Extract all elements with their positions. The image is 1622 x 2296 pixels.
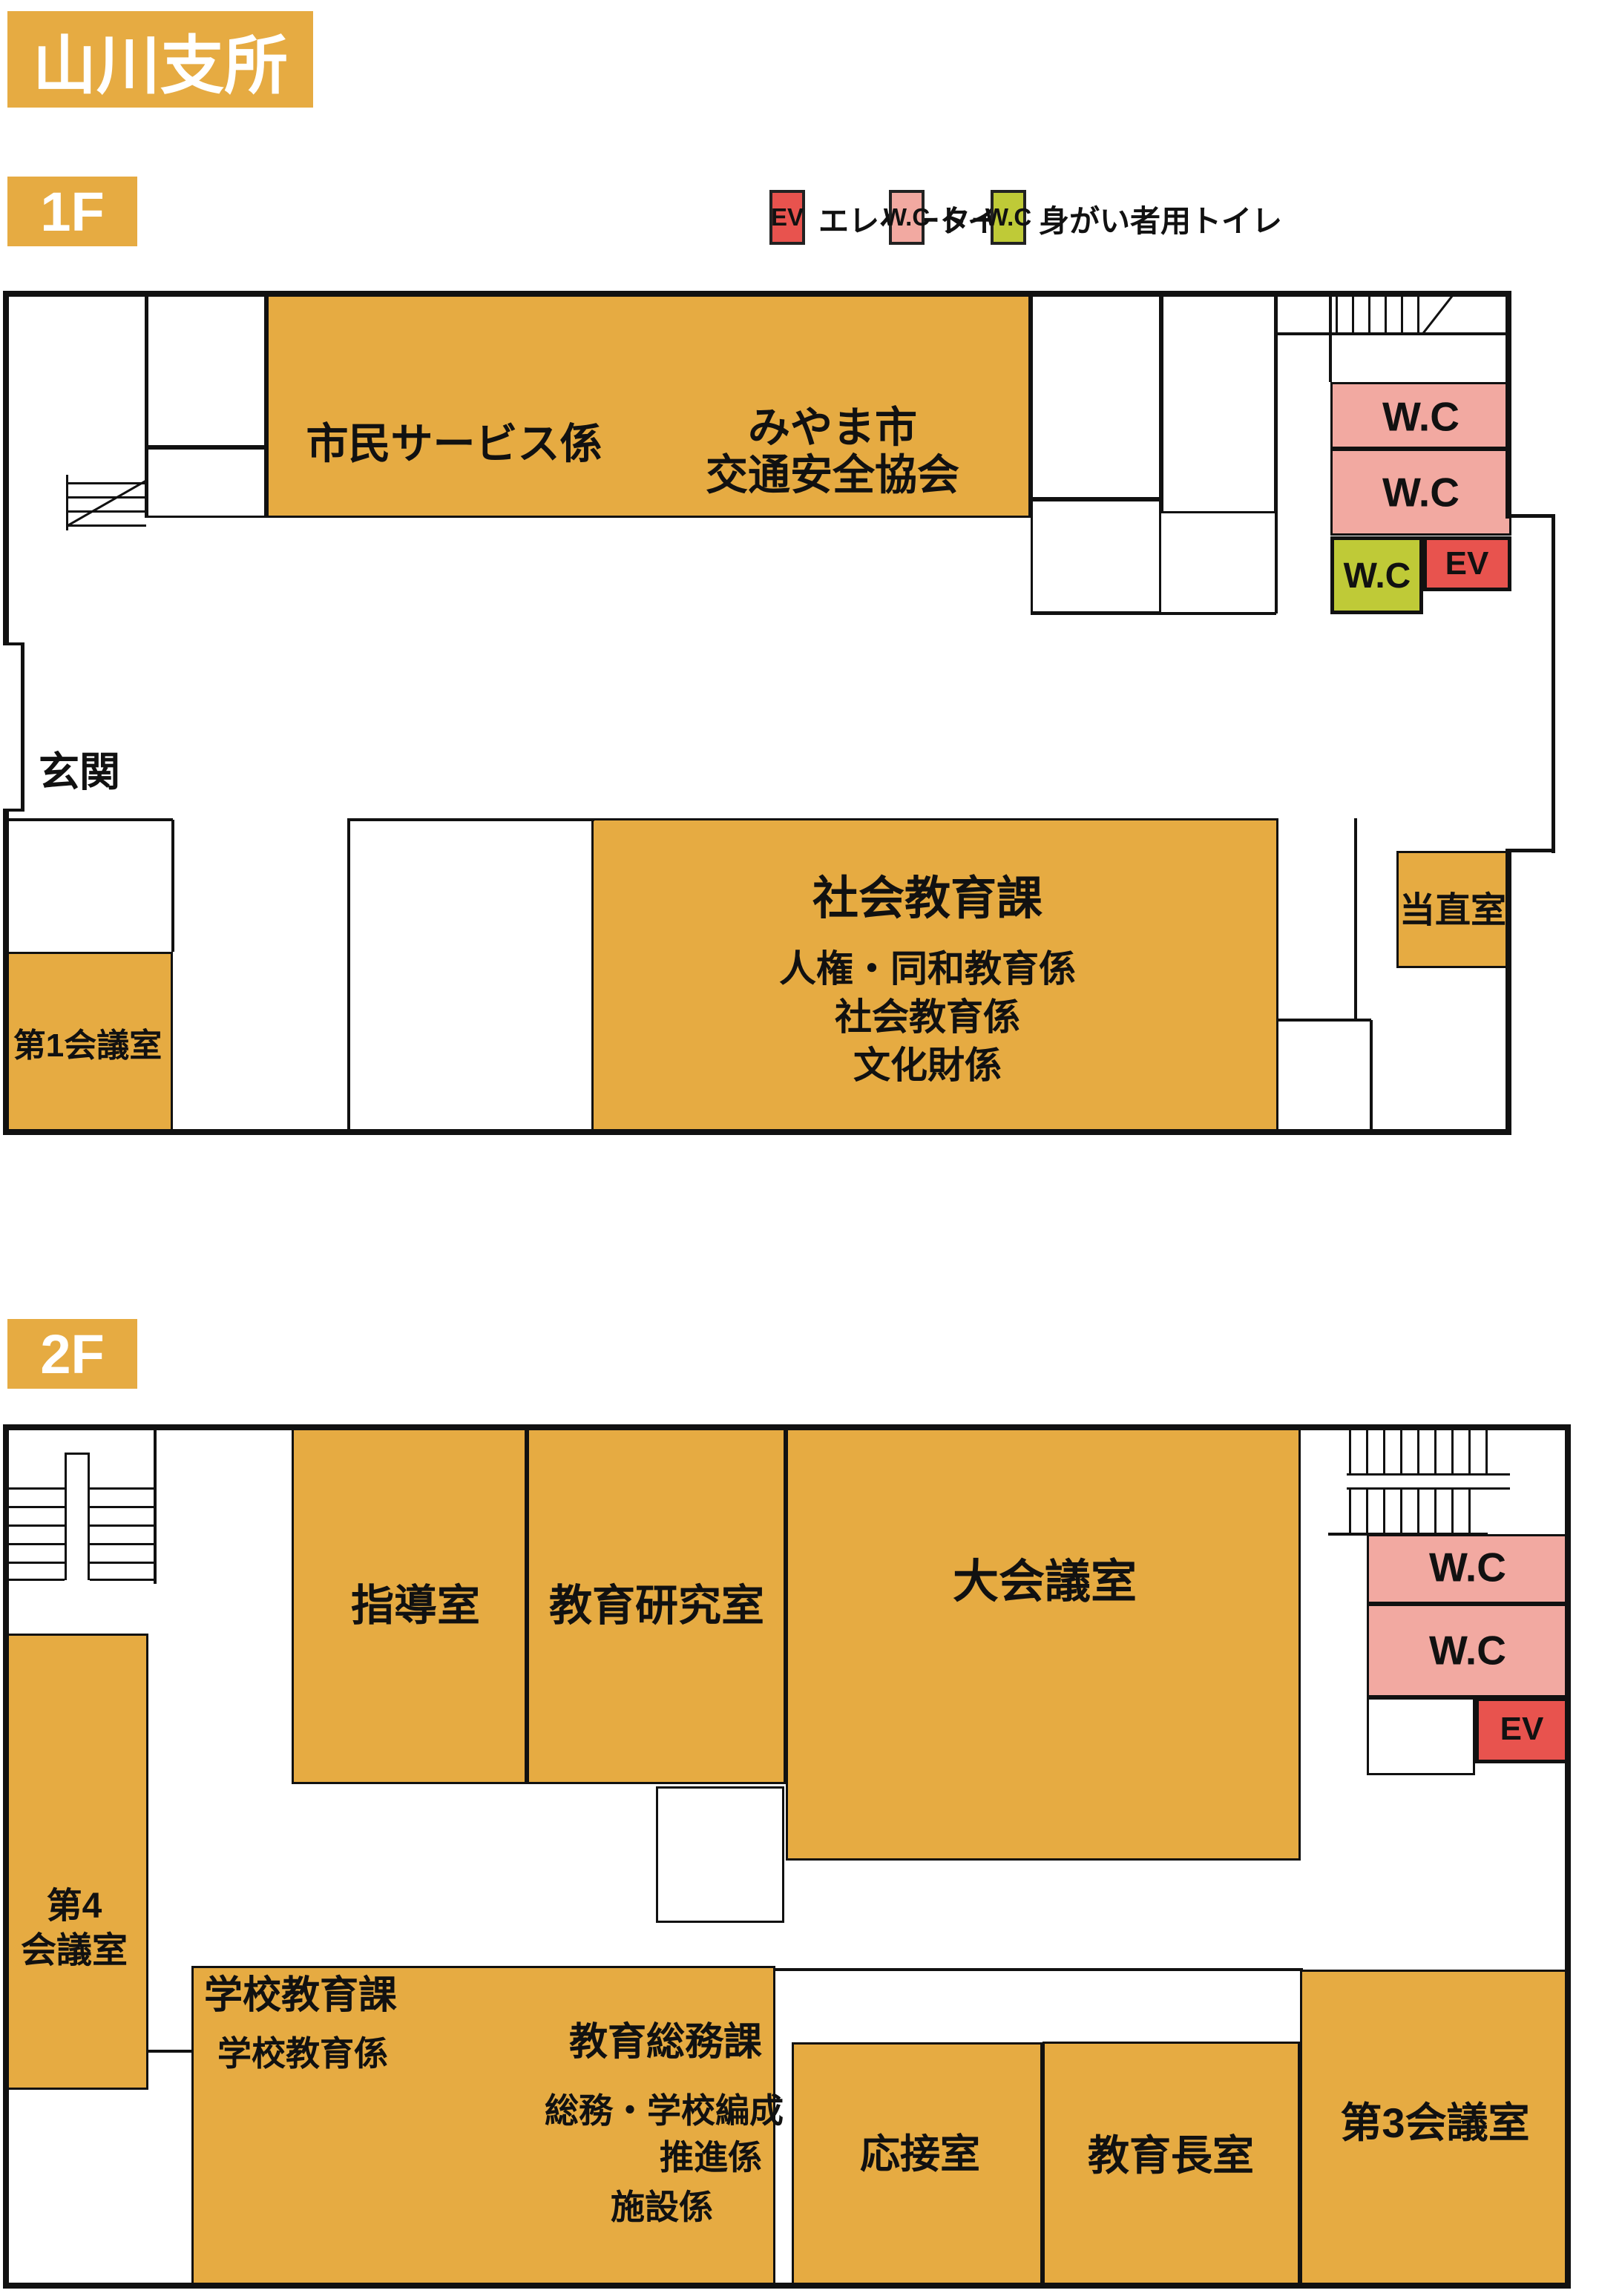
stair-tread bbox=[90, 1543, 154, 1545]
floor-tag-2f-label: 2F bbox=[40, 1323, 104, 1386]
label-miyama-shi: みやま市 bbox=[748, 407, 917, 450]
stair-tread bbox=[1400, 1428, 1402, 1475]
stair-tread bbox=[1352, 292, 1354, 334]
stair-bottom bbox=[1328, 1533, 1488, 1536]
stair-tread bbox=[90, 1524, 154, 1527]
wall-y1105-left bbox=[3, 818, 173, 821]
stair-landing-bar bbox=[1347, 1473, 1510, 1476]
outer-top bbox=[3, 291, 1511, 297]
corridor-wall-x1720 bbox=[1275, 291, 1278, 614]
stair-tread bbox=[1385, 292, 1387, 334]
room-col-a-upper bbox=[1031, 291, 1161, 499]
bump-top bbox=[1506, 514, 1555, 518]
label-elevator: EV bbox=[1500, 1713, 1544, 1746]
stair-landing-bar bbox=[1347, 1487, 1510, 1490]
room-col-a-lower bbox=[1031, 499, 1161, 614]
bump-right bbox=[1552, 514, 1555, 853]
outer-left-lower bbox=[3, 809, 9, 1135]
label-kotsu-anzen: 交通安全協会 bbox=[706, 455, 959, 497]
col-a-door-divider bbox=[1071, 498, 1161, 501]
stair-tread bbox=[1366, 1490, 1368, 1534]
stair-tread bbox=[1336, 292, 1338, 334]
floor-plan-page: 山川支所 1F 2F EV エレベーター W.C トイレ W.C 身がい者用トイ… bbox=[0, 0, 1622, 2296]
outer-left bbox=[3, 1424, 9, 2289]
stair-tread bbox=[66, 510, 146, 513]
room-white-below-wc bbox=[1367, 1697, 1475, 1775]
label-wc-1: W.C bbox=[1429, 1547, 1506, 1588]
stair-tread bbox=[6, 1524, 65, 1527]
floor-tag-1f-label: 1F bbox=[40, 180, 104, 243]
label-kyoiku-kenkyu: 教育研究室 bbox=[549, 1585, 764, 1628]
room-b bbox=[1161, 291, 1276, 513]
label-shimin-service: 市民サービス係 bbox=[306, 424, 602, 466]
stair-tread bbox=[1349, 1428, 1351, 1475]
stair-tread bbox=[66, 496, 146, 499]
label-genkan: 玄関 bbox=[39, 752, 120, 793]
stair-tread bbox=[6, 1506, 65, 1508]
legend-accessible-wc-text: 身がい者用トイレ bbox=[1039, 196, 1282, 240]
stair-tread bbox=[90, 1562, 154, 1564]
stair-bound bbox=[154, 1424, 157, 1584]
floor-tag-1f: 1F bbox=[7, 177, 137, 246]
wall-x1793-upper bbox=[1329, 291, 1332, 382]
stair-tread bbox=[66, 524, 146, 527]
label-elevator: EV bbox=[1445, 547, 1489, 580]
label-dai4-line2: 会議室 bbox=[21, 1933, 128, 1969]
stair-bottom-y450 bbox=[1276, 332, 1511, 335]
label-shakai-kyoiku-ka: 社会教育課 bbox=[812, 876, 1043, 922]
label-wc-2: W.C bbox=[1382, 473, 1460, 513]
label-wc-1: W.C bbox=[1382, 397, 1460, 438]
label-dai4-line1: 第4 bbox=[47, 1889, 102, 1924]
stair-tread bbox=[1485, 1428, 1488, 1475]
stair-tread bbox=[1417, 1428, 1419, 1475]
label-kyoikucho: 教育長室 bbox=[1088, 2135, 1254, 2177]
legend-wc-swatch: W.C bbox=[889, 190, 925, 245]
label-wc-accessible: W.C bbox=[1344, 559, 1411, 594]
label-dai1-kaigishitsu: 第1会議室 bbox=[13, 1030, 162, 1062]
stair-tread bbox=[1434, 1428, 1437, 1475]
stair-rail bbox=[65, 1454, 67, 1580]
outer-bottom bbox=[3, 1129, 1510, 1135]
entrance-inset bbox=[21, 642, 24, 812]
outer-right bbox=[1565, 1424, 1571, 2289]
stair-tread bbox=[1468, 1428, 1471, 1475]
label-kyoiku-somu-ka: 教育総務課 bbox=[569, 2023, 762, 2062]
page-title: 山川支所 bbox=[33, 13, 288, 106]
outer-bottom bbox=[3, 2283, 1571, 2289]
stair-tread bbox=[1468, 1490, 1471, 1534]
room-white-upper bbox=[146, 291, 266, 447]
stair-tread bbox=[1383, 1490, 1385, 1534]
label-shido: 指導室 bbox=[351, 1585, 480, 1628]
label-bunkazai: 文化財係 bbox=[853, 1047, 1002, 1084]
stair-tread bbox=[90, 1487, 154, 1490]
stair-tread bbox=[1401, 292, 1403, 334]
stair-diagonal bbox=[66, 479, 148, 527]
stair-tread bbox=[1368, 292, 1370, 334]
room-white-lower bbox=[146, 447, 266, 518]
stair-tread bbox=[6, 1487, 65, 1490]
room-notch-white bbox=[656, 1786, 784, 1923]
label-suishin-kakari: 推進係 bbox=[660, 2140, 762, 2174]
label-shakai-kyoiku-kakari: 社会教育係 bbox=[835, 999, 1020, 1036]
stair-tread bbox=[6, 1543, 65, 1545]
wall-y1105-mid bbox=[349, 818, 594, 821]
label-jinken-dowa: 人権・同和教育係 bbox=[779, 950, 1076, 987]
label-dai3-kaigishitsu: 第3会議室 bbox=[1340, 2102, 1529, 2144]
step-wall bbox=[148, 2050, 193, 2053]
outer-right-lower bbox=[1506, 849, 1511, 1135]
stair-tread bbox=[1383, 1428, 1385, 1475]
stair-tread bbox=[1434, 1490, 1437, 1534]
label-tochoku: 当直室 bbox=[1399, 893, 1506, 929]
wall-y1375 bbox=[1278, 1019, 1371, 1022]
label-gakko-kyoiku-ka: 学校教育課 bbox=[204, 1976, 397, 2015]
outer-right-upper bbox=[1506, 291, 1511, 519]
label-wc-2: W.C bbox=[1429, 1631, 1506, 1671]
stair-diagonal bbox=[1422, 291, 1457, 334]
stair-tread bbox=[90, 1506, 154, 1508]
stair-tread bbox=[1417, 1490, 1419, 1534]
label-shisetsu-kakari: 施設係 bbox=[611, 2190, 713, 2224]
legend-accessible-wc-swatch: W.C bbox=[991, 190, 1026, 245]
stair-tread bbox=[6, 1579, 65, 1581]
corridor-wall-y827 bbox=[1031, 612, 1276, 615]
label-somu-gakko-hensei: 総務・学校編成 bbox=[545, 2093, 784, 2128]
stair-tread bbox=[1349, 1490, 1351, 1534]
floor-tag-2f: 2F bbox=[7, 1319, 137, 1389]
stair-tread bbox=[90, 1579, 154, 1581]
label-gakko-kyoiku-kakari: 学校教育係 bbox=[217, 2036, 388, 2070]
label-dai-kaigishitsu: 大会議室 bbox=[953, 1559, 1137, 1605]
south-band-top bbox=[775, 1968, 1303, 1971]
room-dai-kaigishitsu bbox=[786, 1424, 1301, 1861]
wall-x1848 bbox=[1370, 1020, 1373, 1135]
outer-left-upper bbox=[3, 291, 9, 645]
room-dai4-kaigishitsu bbox=[3, 1634, 148, 2090]
stair-tread bbox=[6, 1562, 65, 1564]
wall-x1827 bbox=[1354, 818, 1357, 1020]
stair-tread bbox=[1451, 1490, 1454, 1534]
stair-tread bbox=[1400, 1490, 1402, 1534]
stair-tread bbox=[66, 482, 146, 484]
outer-top bbox=[3, 1424, 1571, 1430]
stair-tread bbox=[1417, 292, 1419, 334]
stair-tread bbox=[1366, 1428, 1368, 1475]
page-title-box: 山川支所 bbox=[7, 11, 313, 108]
wall-x233 bbox=[171, 820, 174, 952]
legend-elevator-swatch: EV bbox=[769, 190, 805, 245]
stair-rail-top bbox=[65, 1453, 90, 1455]
label-osetsushitsu: 応接室 bbox=[860, 2134, 980, 2174]
stair-tread bbox=[1451, 1428, 1454, 1475]
bump-bottom bbox=[1506, 849, 1555, 852]
wall-x470 bbox=[347, 818, 350, 1135]
